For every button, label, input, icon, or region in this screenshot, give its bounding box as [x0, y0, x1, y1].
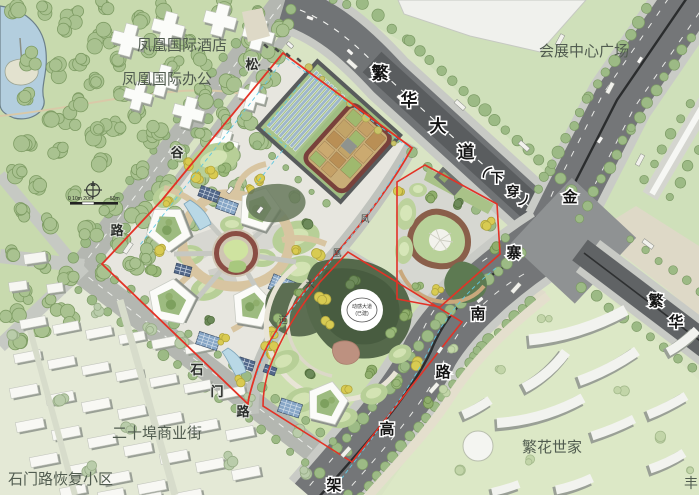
- svg-text:架: 架: [325, 477, 341, 494]
- svg-text:谷: 谷: [170, 145, 184, 160]
- svg-text:松: 松: [245, 57, 258, 72]
- svg-text:路: 路: [110, 223, 124, 238]
- svg-text:华: 华: [668, 313, 683, 331]
- svg-text:下: 下: [490, 170, 503, 185]
- svg-text:凰: 凰: [332, 248, 341, 258]
- svg-text:繁花世家: 繁花世家: [522, 439, 582, 456]
- svg-text:华: 华: [401, 90, 418, 110]
- svg-text:动感大道: 动感大道: [352, 303, 372, 310]
- svg-text:穿: 穿: [506, 184, 519, 199]
- svg-text:繁: 繁: [371, 63, 390, 83]
- svg-text:二十埠商业街: 二十埠商业街: [112, 424, 202, 442]
- svg-text:凤凰国际酒店: 凤凰国际酒店: [137, 37, 227, 54]
- svg-text:路: 路: [236, 404, 250, 419]
- svg-text:凤凰国际办公: 凤凰国际办公: [122, 71, 212, 88]
- svg-text:道: 道: [458, 142, 475, 162]
- svg-text:丰: 丰: [684, 475, 698, 491]
- svg-text:会展中心广场: 会展中心广场: [539, 43, 629, 60]
- svg-text:高: 高: [379, 420, 394, 438]
- svg-text:石: 石: [189, 362, 203, 377]
- svg-text:大: 大: [430, 116, 447, 136]
- svg-text:石门路恢复小区: 石门路恢复小区: [8, 470, 113, 488]
- svg-text:门: 门: [210, 384, 223, 399]
- svg-text:寨: 寨: [505, 244, 521, 262]
- svg-text:繁: 繁: [647, 292, 664, 310]
- svg-text:南: 南: [470, 305, 485, 323]
- svg-text:(已建): (已建): [355, 310, 369, 317]
- svg-text:凤: 凤: [360, 214, 369, 224]
- svg-text:道: 道: [278, 314, 287, 325]
- svg-text:0 10m 20m: 0 10m 20m: [68, 196, 93, 202]
- svg-text:大: 大: [305, 278, 314, 289]
- svg-text:路: 路: [435, 363, 451, 381]
- svg-text:50m: 50m: [110, 196, 120, 202]
- svg-text:金: 金: [561, 188, 578, 206]
